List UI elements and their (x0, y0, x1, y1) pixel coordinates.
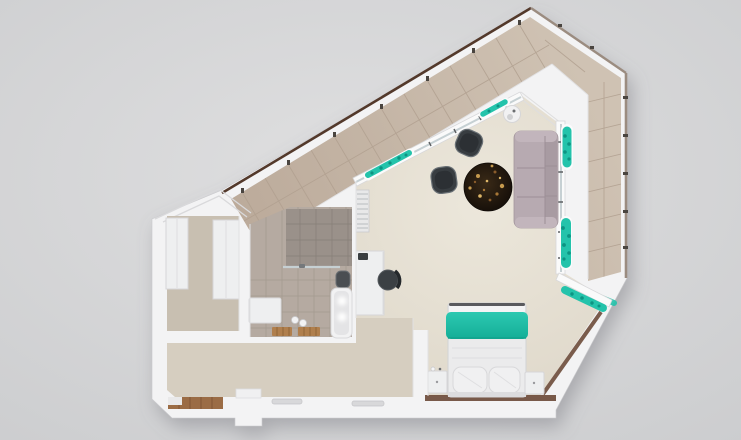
bed-teal-blanket (446, 312, 528, 339)
sofa-armrest-top (515, 131, 557, 142)
door-threshold-2 (352, 401, 384, 406)
nightstand-left (428, 367, 447, 393)
vanity (249, 298, 281, 323)
bed-headboard (448, 392, 526, 397)
bed-frame-edge (449, 303, 525, 306)
planter-east-lower (561, 222, 571, 264)
bathtub-light-2 (338, 313, 347, 322)
armchair-lower (430, 165, 458, 194)
shower-floor (286, 209, 352, 266)
planter-east-upper (563, 130, 571, 164)
bathtub-light (338, 297, 347, 306)
walk-in-closet (166, 216, 239, 331)
bed-sheet-fold (449, 306, 525, 313)
office-chair (378, 270, 400, 290)
nightstand-right (525, 372, 544, 394)
toilet (336, 271, 350, 288)
coffee-table (464, 163, 512, 211)
hall-wall-stub (236, 389, 261, 398)
radiator (356, 190, 369, 232)
sofa-armrest-bottom (515, 217, 557, 228)
entry-step (168, 397, 182, 405)
floor-plan-render (0, 0, 741, 440)
toilet-paper-roll (292, 317, 299, 324)
side-table (504, 106, 521, 123)
desk-monitor (358, 253, 368, 260)
sofa (514, 131, 558, 228)
entry-parquet (168, 397, 223, 409)
double-bed (446, 303, 528, 397)
floor-plan-canvas (0, 0, 741, 440)
door-threshold (272, 399, 302, 404)
bathroom (249, 207, 352, 338)
shower-glass-handle (299, 264, 305, 268)
toilet-paper-roll-2 (300, 320, 307, 327)
